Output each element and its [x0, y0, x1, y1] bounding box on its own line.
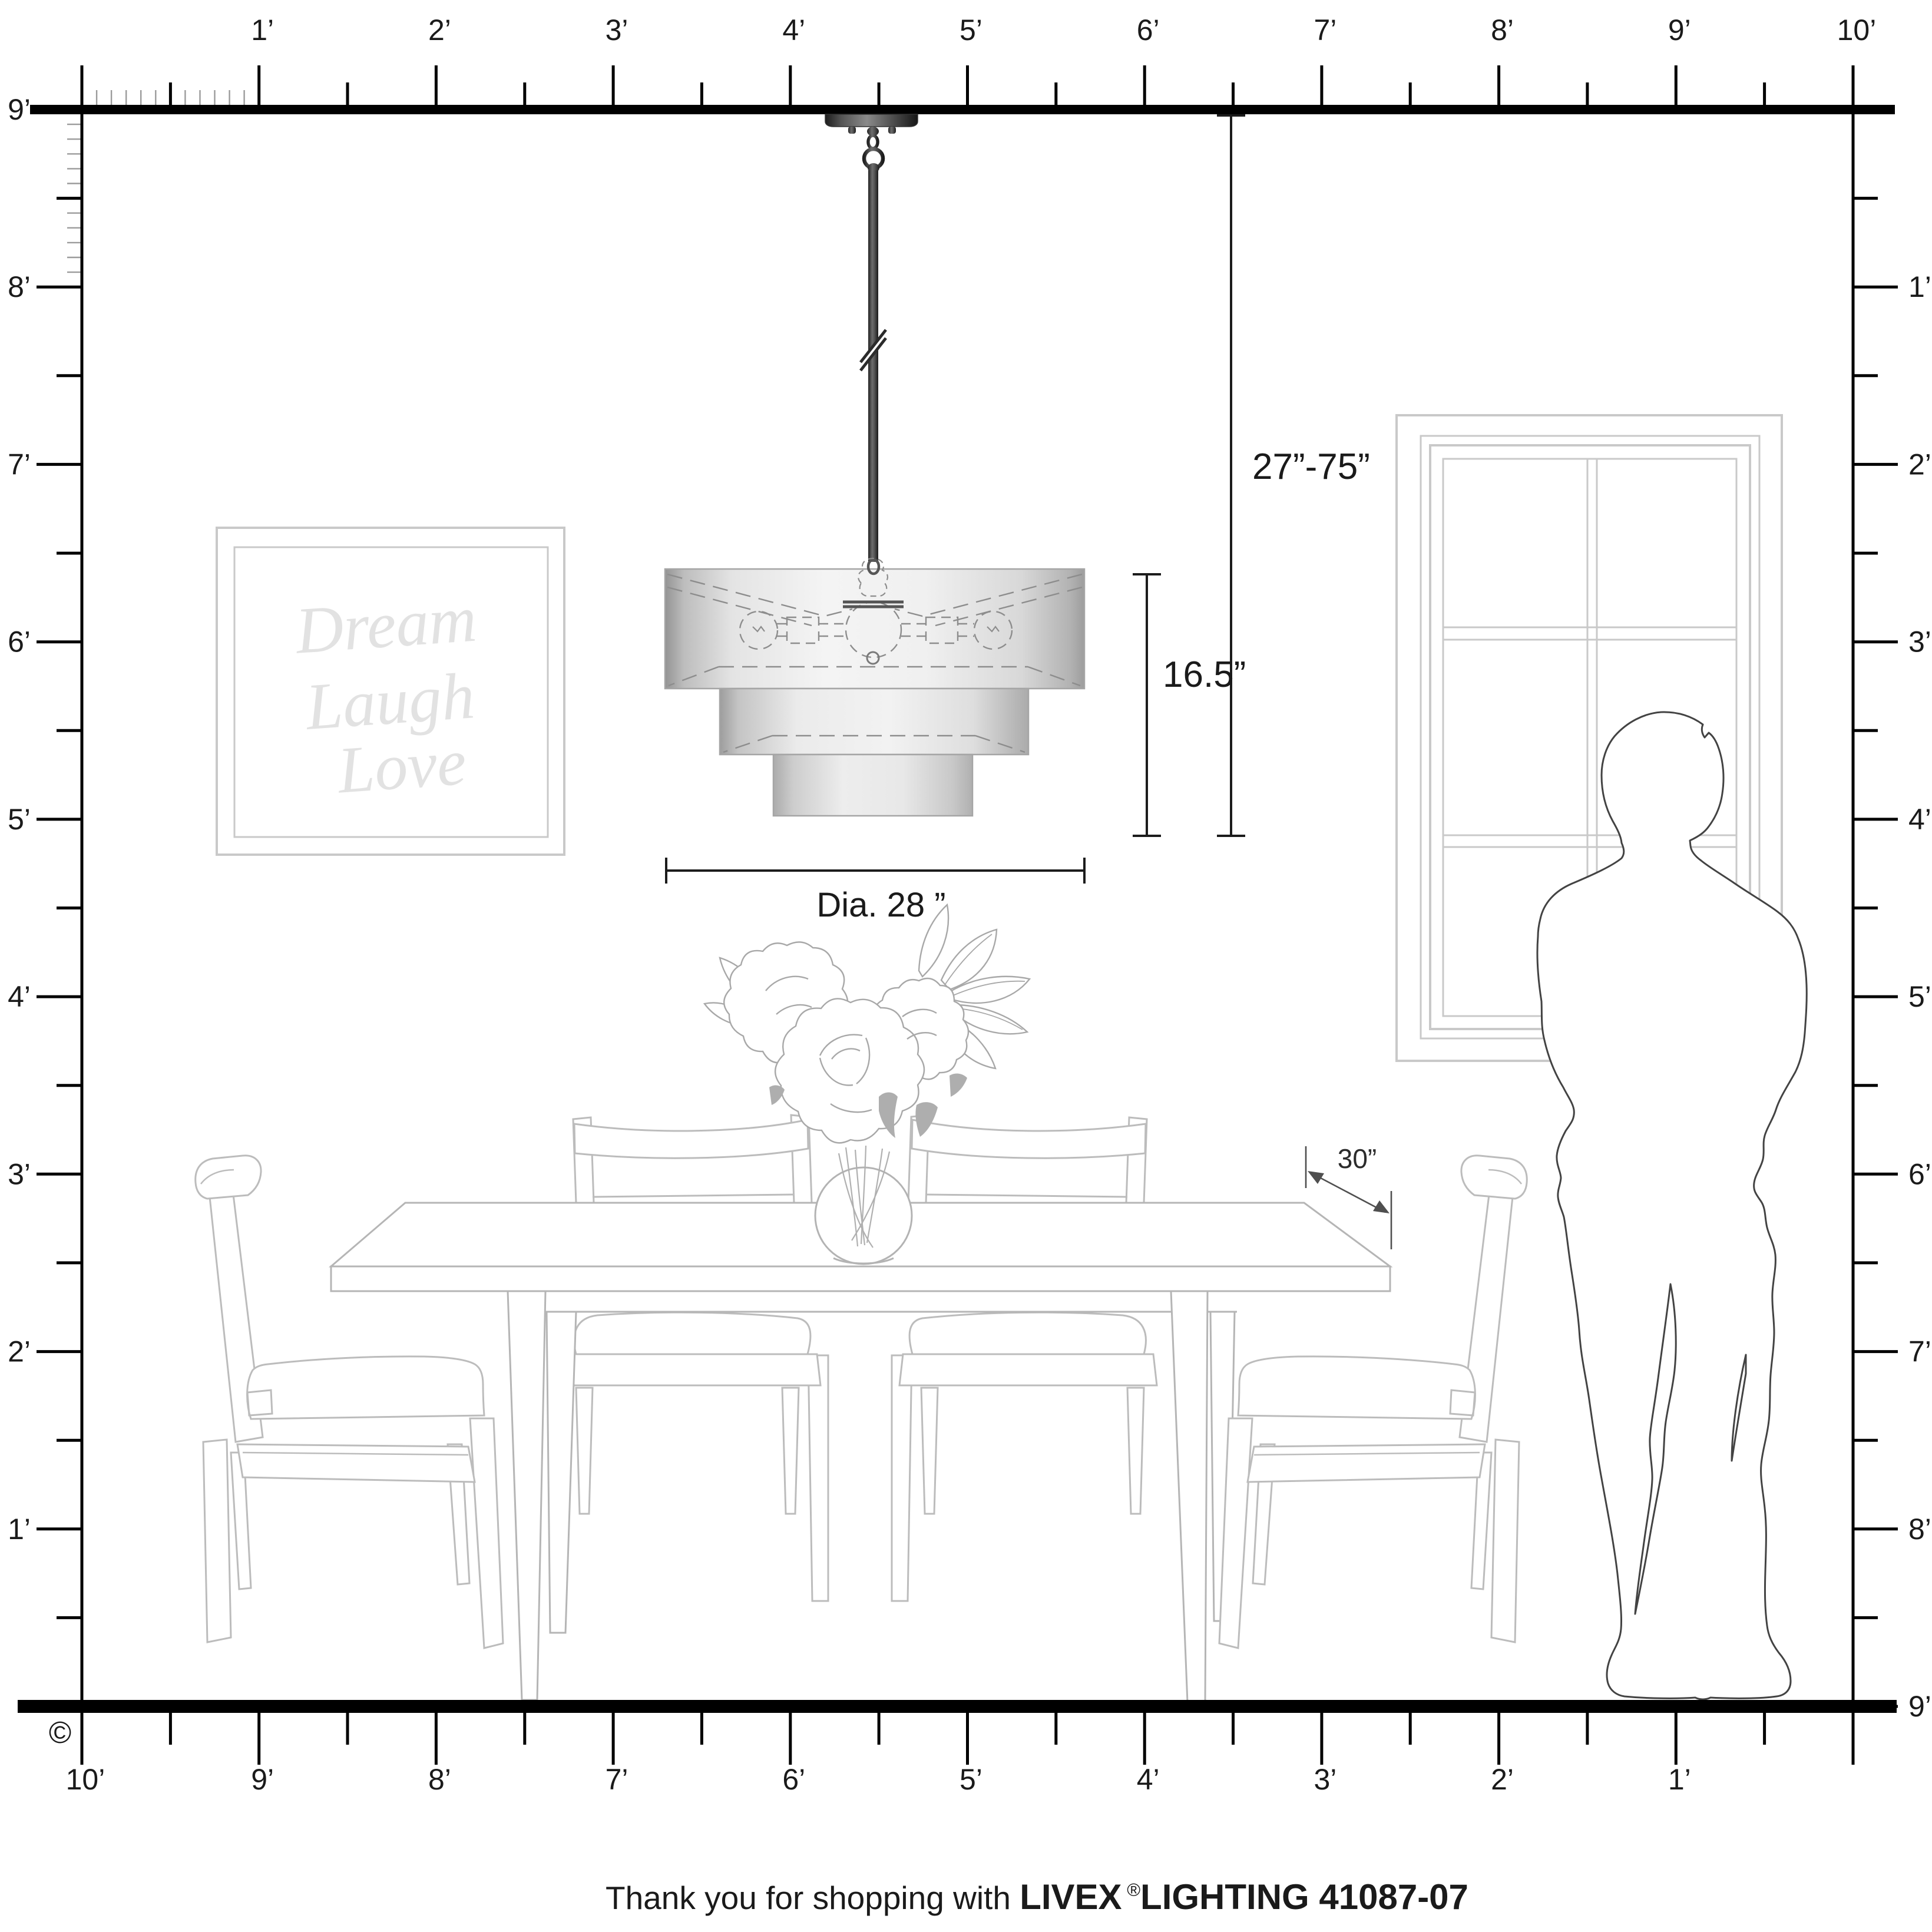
- svg-text:6’: 6’: [8, 626, 31, 659]
- svg-text:7’: 7’: [1314, 14, 1336, 47]
- svg-text:1’: 1’: [8, 1513, 31, 1546]
- svg-text:Dream: Dream: [292, 583, 479, 668]
- svg-text:9’: 9’: [251, 1763, 274, 1796]
- svg-text:Dia. 28 ”: Dia. 28 ”: [816, 886, 945, 924]
- svg-text:10’: 10’: [66, 1763, 105, 1796]
- svg-text:Thank you for shopping with LI: Thank you for shopping with LIVEX ®LIGHT…: [606, 1877, 1468, 1917]
- svg-text:5’: 5’: [1908, 980, 1931, 1013]
- svg-text:2’: 2’: [428, 14, 451, 47]
- svg-text:5’: 5’: [960, 14, 982, 47]
- svg-text:16.5”: 16.5”: [1163, 654, 1246, 695]
- svg-text:8’: 8’: [428, 1763, 451, 1796]
- svg-text:3’: 3’: [1314, 1763, 1336, 1796]
- svg-text:9’: 9’: [8, 93, 31, 126]
- svg-text:8’: 8’: [8, 270, 31, 303]
- svg-text:1’: 1’: [251, 14, 274, 47]
- svg-text:3’: 3’: [1908, 626, 1931, 659]
- svg-text:27”-75”: 27”-75”: [1252, 446, 1370, 487]
- svg-text:3’: 3’: [606, 14, 628, 47]
- svg-text:2’: 2’: [8, 1335, 31, 1368]
- svg-text:5’: 5’: [960, 1763, 982, 1796]
- svg-text:©: ©: [49, 1716, 71, 1750]
- svg-text:1’: 1’: [1908, 270, 1931, 303]
- svg-text:4’: 4’: [782, 14, 805, 47]
- svg-text:2’: 2’: [1491, 1763, 1514, 1796]
- svg-text:10’: 10’: [1837, 14, 1877, 47]
- svg-text:3’: 3’: [8, 1157, 31, 1190]
- svg-text:6’: 6’: [1137, 14, 1160, 47]
- svg-text:Love: Love: [335, 726, 469, 808]
- svg-text:4’: 4’: [8, 980, 31, 1013]
- svg-text:6’: 6’: [1908, 1157, 1931, 1190]
- svg-text:7’: 7’: [606, 1763, 628, 1796]
- svg-text:6’: 6’: [782, 1763, 805, 1796]
- svg-text:2’: 2’: [1908, 448, 1931, 481]
- svg-text:4’: 4’: [1137, 1763, 1160, 1796]
- svg-text:8’: 8’: [1908, 1513, 1931, 1546]
- svg-text:30”: 30”: [1338, 1143, 1377, 1174]
- svg-text:9’: 9’: [1668, 14, 1691, 47]
- svg-text:7’: 7’: [8, 448, 31, 481]
- svg-text:1’: 1’: [1668, 1763, 1691, 1796]
- svg-text:5’: 5’: [8, 803, 31, 836]
- svg-text:4’: 4’: [1908, 803, 1931, 836]
- svg-text:9’: 9’: [1908, 1690, 1931, 1723]
- svg-text:8’: 8’: [1491, 14, 1514, 47]
- svg-text:7’: 7’: [1908, 1335, 1931, 1368]
